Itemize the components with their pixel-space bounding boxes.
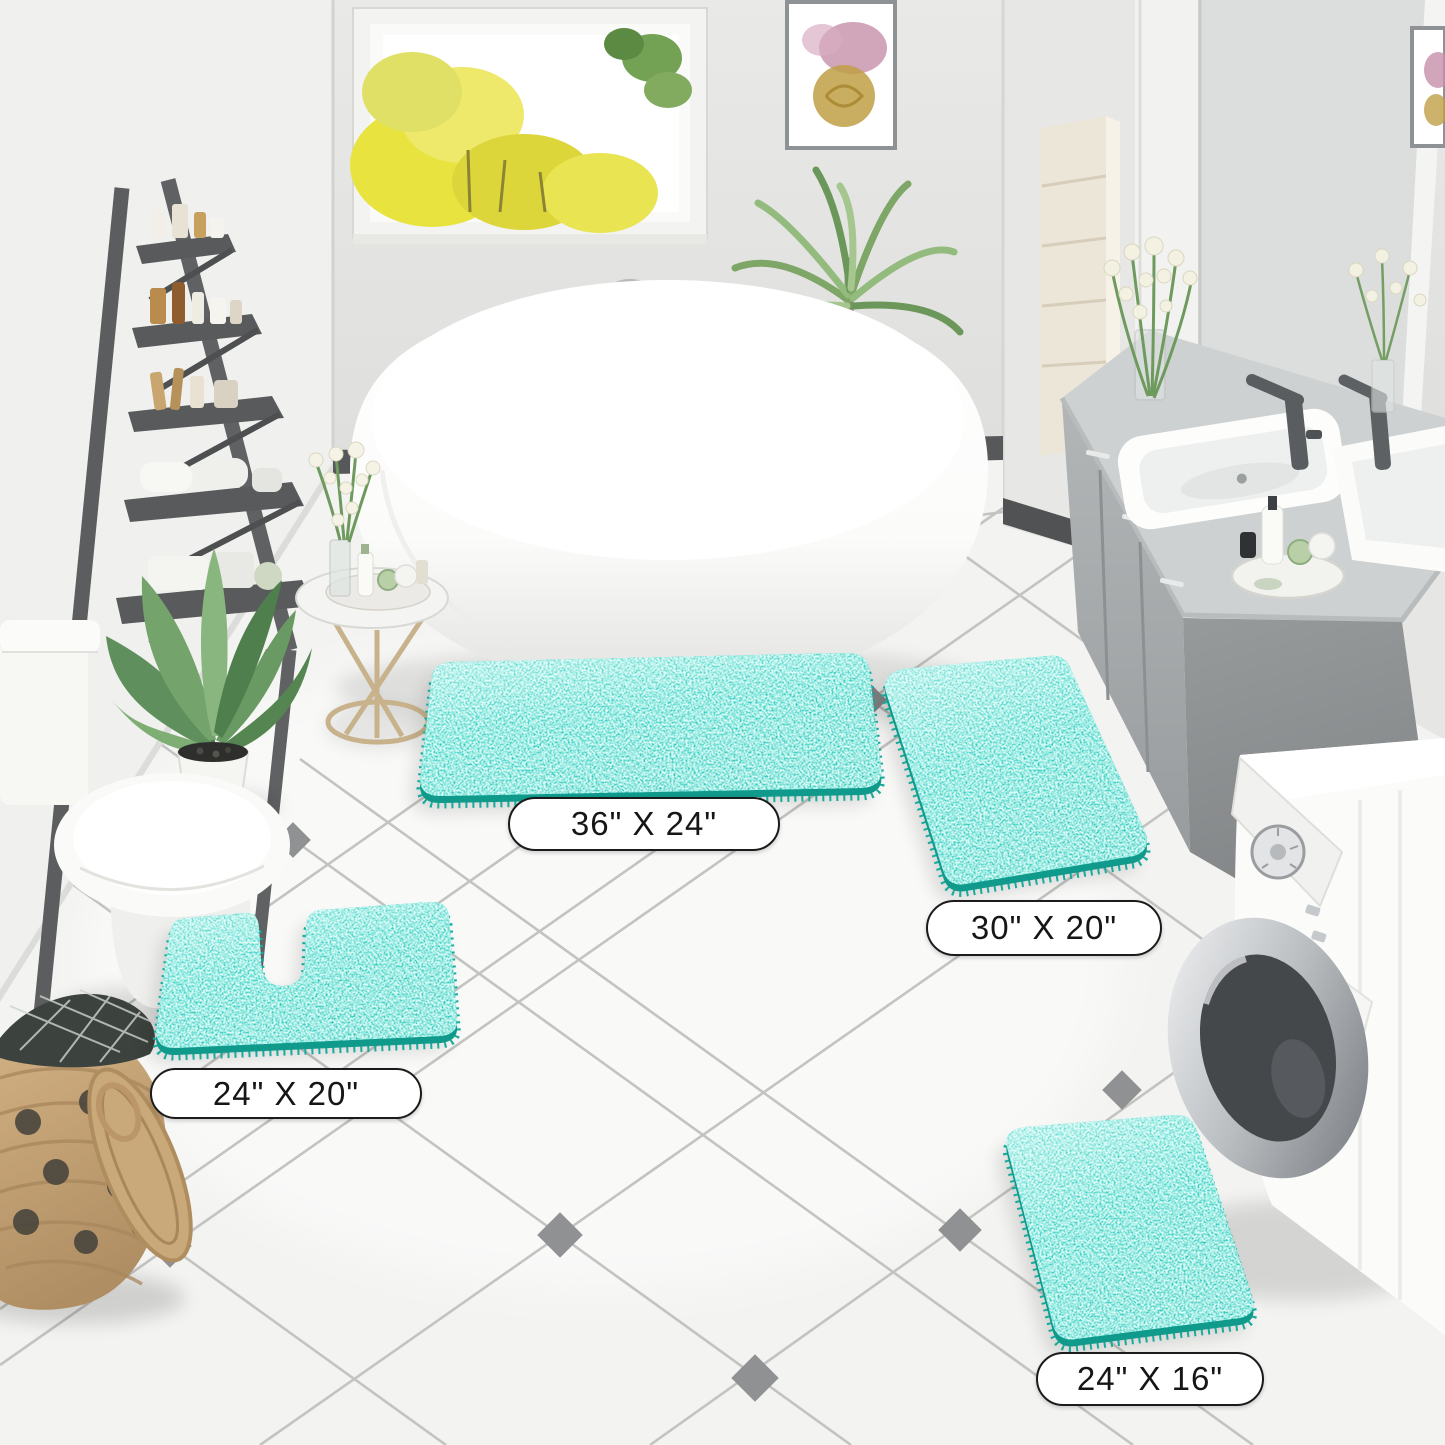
scene-canvas: [0, 0, 1445, 1445]
size-label-24x20: 24" X 20": [150, 1068, 422, 1119]
size-label-24x16: 24" X 16": [1036, 1352, 1264, 1406]
bathroom-scene: 36" X 24" 30" X 20" 24" X 20" 24" X 16": [0, 0, 1445, 1445]
art-frame-partial: [1412, 28, 1445, 146]
toilet-tank-lid: [0, 620, 100, 652]
size-label-30x20: 30" X 20": [926, 900, 1162, 956]
toilet-tank: [0, 640, 88, 805]
window-sill: [353, 234, 707, 244]
bathtub-rim: [372, 280, 964, 560]
window: [350, 8, 707, 244]
rug-36x24: [412, 653, 881, 812]
size-label-36x24: 36" X 24": [508, 797, 780, 851]
